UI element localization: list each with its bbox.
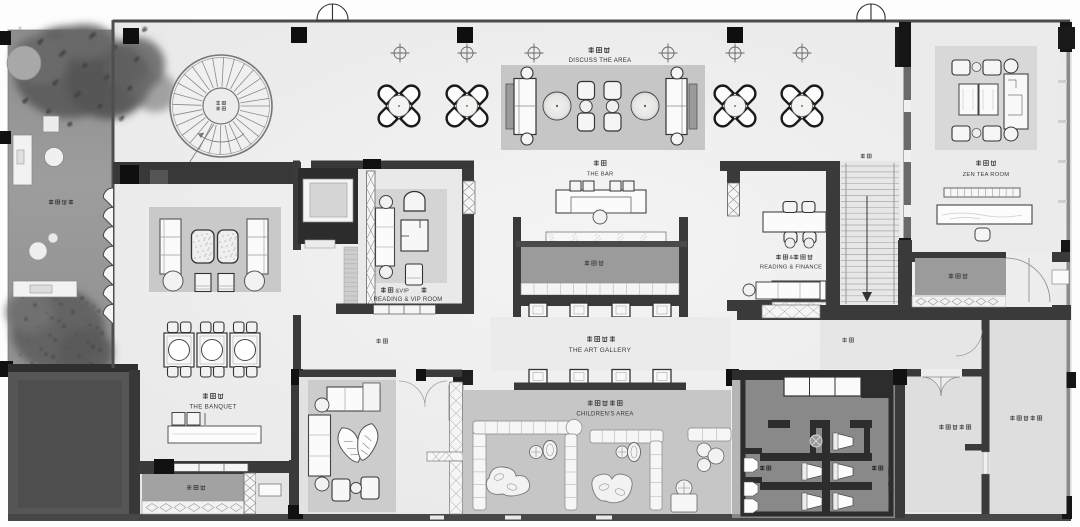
svg-text:&: &: [790, 255, 794, 261]
svg-text:THE BAR: THE BAR: [587, 172, 614, 178]
svg-text:CHILDREN'S AREA: CHILDREN'S AREA: [576, 412, 633, 418]
svg-text:READING & FINANCE: READING & FINANCE: [760, 265, 822, 271]
svg-text:ZEN TEA ROOM: ZEN TEA ROOM: [963, 172, 1010, 178]
svg-text:READING & VIP ROOM: READING & VIP ROOM: [373, 297, 442, 303]
svg-text:THE ART GALLERY: THE ART GALLERY: [569, 347, 632, 354]
svg-text:DISCUSS THE AREA: DISCUSS THE AREA: [569, 58, 632, 64]
svg-text:&VIP: &VIP: [396, 288, 410, 294]
svg-text:THE BANQUET: THE BANQUET: [189, 404, 236, 411]
svg-text:-1.7F 4-129: -1.7F 4-129: [887, 468, 892, 492]
